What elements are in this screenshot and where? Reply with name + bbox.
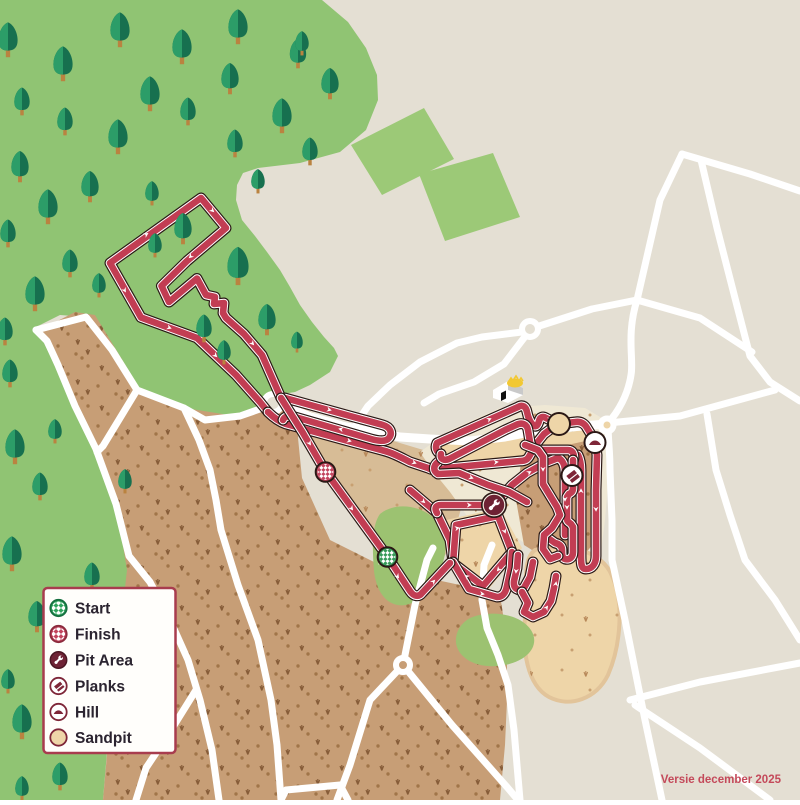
svg-text:Planks: Planks (75, 679, 125, 696)
svg-text:Versie december 2025: Versie december 2025 (661, 774, 782, 786)
svg-text:Hill: Hill (75, 705, 99, 722)
svg-text:Finish: Finish (75, 627, 121, 644)
svg-text:Start: Start (75, 601, 110, 618)
svg-text:Sandpit: Sandpit (75, 730, 132, 747)
svg-text:Pit Area: Pit Area (75, 653, 133, 670)
